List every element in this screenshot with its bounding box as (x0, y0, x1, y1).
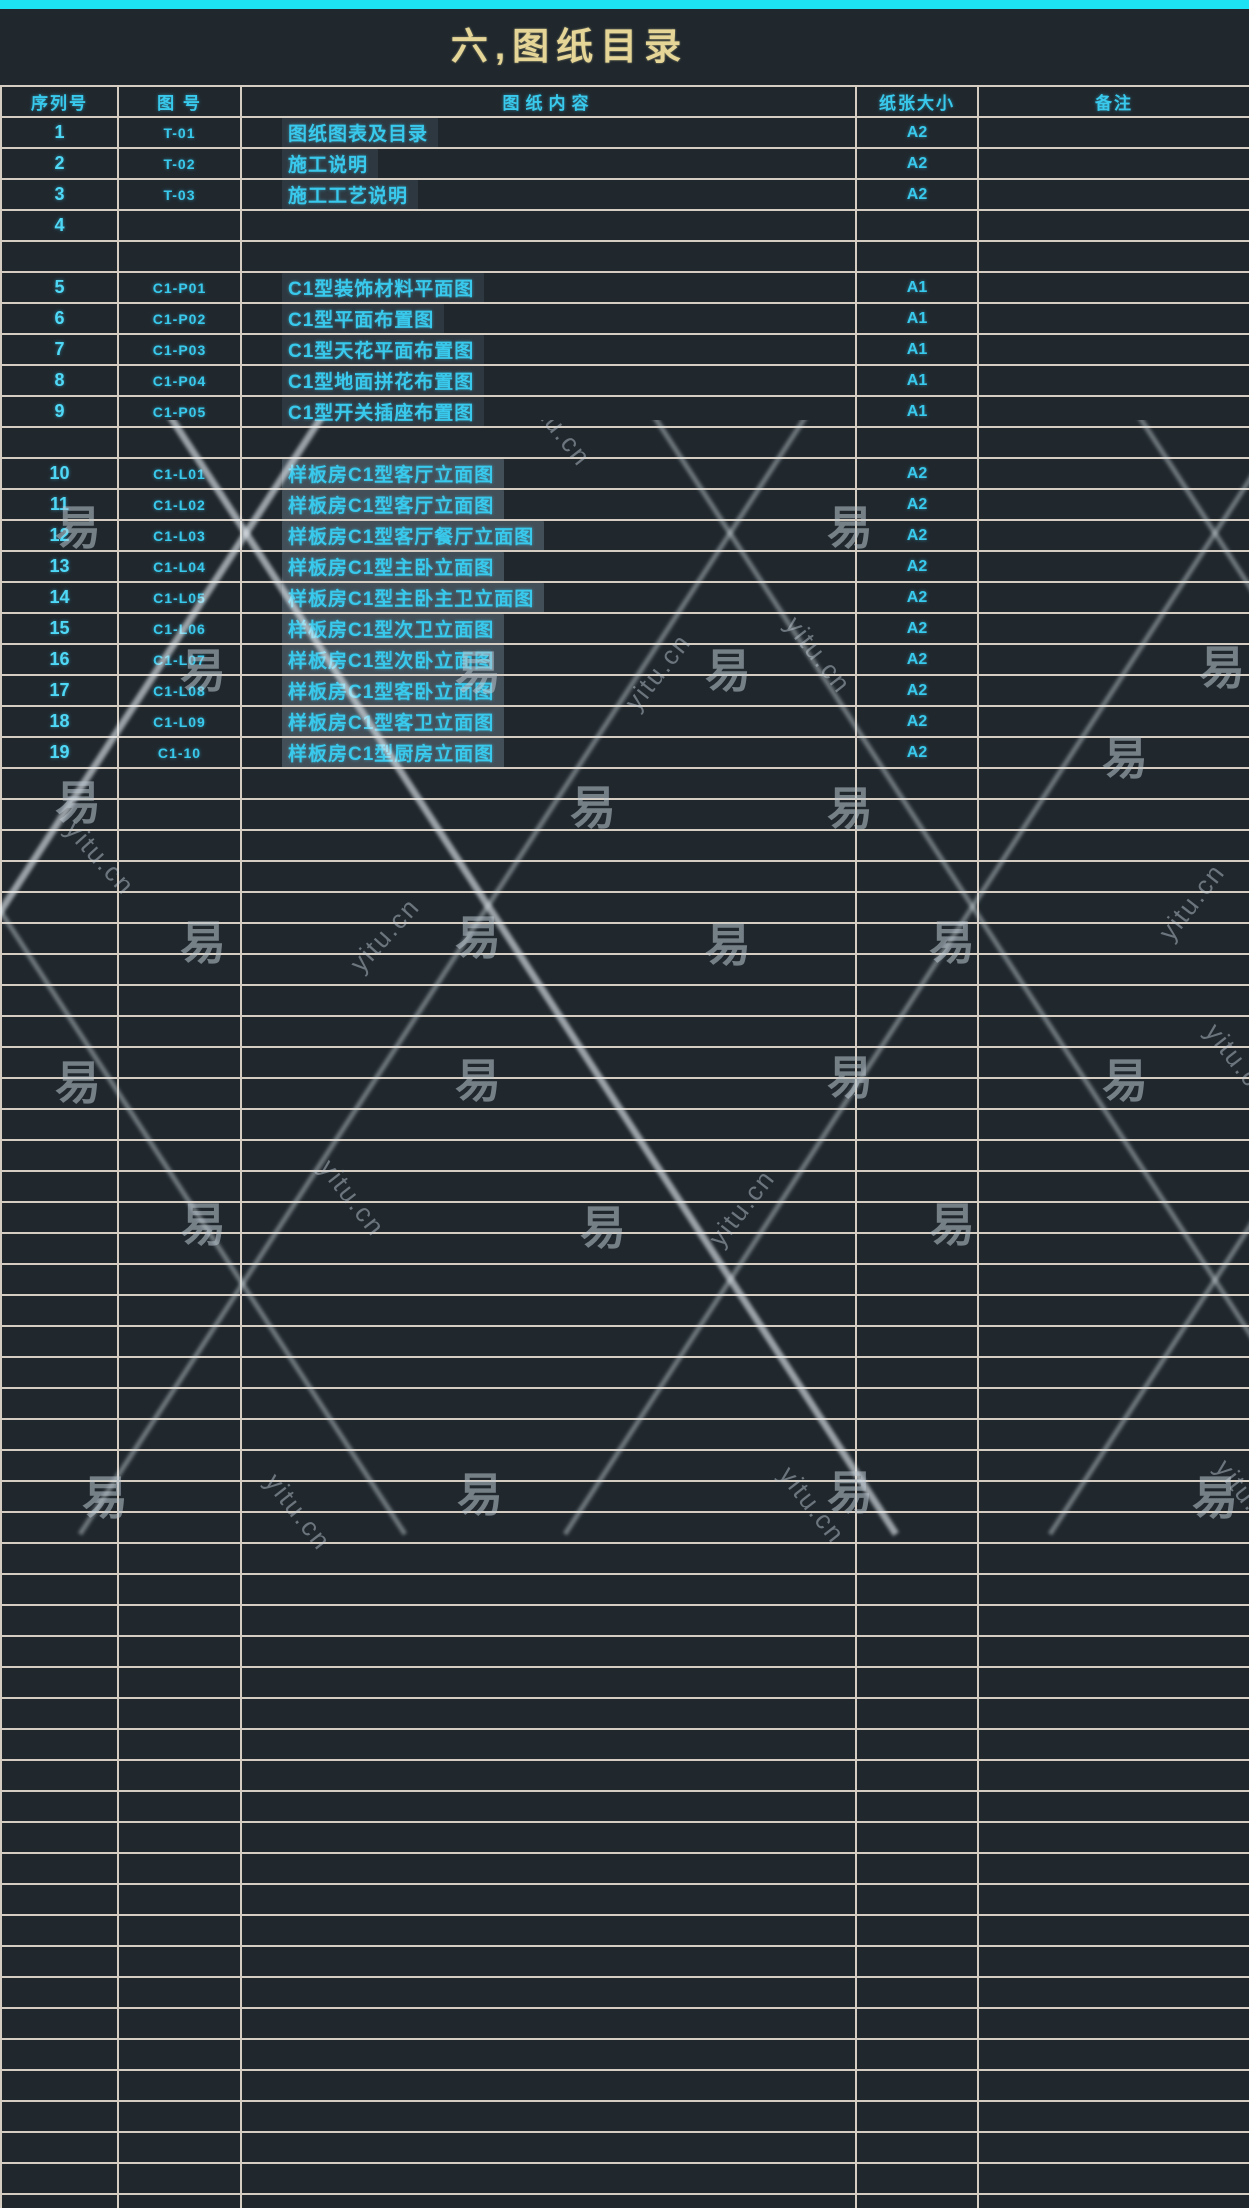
drawing-content-text: 样板房C1型主卧主卫立面图 (282, 583, 544, 612)
table-row: 14C1-L05样板房C1型主卧主卫立面图A2 (2, 583, 1249, 614)
table-row-empty (2, 1823, 1249, 1854)
table-row-empty (2, 2071, 1249, 2102)
table-row-empty (2, 893, 1249, 924)
drawing-content-text: 样板房C1型客卧立面图 (282, 676, 504, 705)
drawing-content-text: C1型地面拼花布置图 (282, 366, 484, 395)
drawing-content-text: 样板房C1型客卫立面图 (282, 707, 504, 736)
header-paper-size: 纸张大小 (857, 87, 979, 116)
page-title: 六,图纸目录 (0, 16, 1194, 70)
header-drawing-no: 图 号 (119, 87, 242, 116)
table-row-empty (2, 1079, 1249, 1110)
table-row: 9C1-P05C1型开关插座布置图A1 (2, 397, 1249, 428)
drawing-content-text: 样板房C1型客厅餐厅立面图 (282, 521, 544, 550)
table-row-empty (2, 924, 1249, 955)
table-row: 12C1-L03样板房C1型客厅餐厅立面图A2 (2, 521, 1249, 552)
table-row-empty (2, 1172, 1249, 1203)
drawing-content-text: C1型天花平面布置图 (282, 335, 484, 364)
table-row-empty (2, 1203, 1249, 1234)
drawing-content-text: 图纸图表及目录 (282, 118, 438, 147)
table-row-empty (2, 2102, 1249, 2133)
table-row: 10C1-L01样板房C1型客厅立面图A2 (2, 459, 1249, 490)
table-row-empty (2, 955, 1249, 986)
table-row-empty (2, 1513, 1249, 1544)
table-row: 4 (2, 211, 1249, 242)
table-row: 18C1-L09样板房C1型客卫立面图A2 (2, 707, 1249, 738)
table-body: 1T-01图纸图表及目录A22T-02施工说明A23T-03施工工艺说明A245… (2, 118, 1249, 2208)
table-row: 5C1-P01C1型装饰材料平面图A1 (2, 273, 1249, 304)
header-content: 图纸内容 (242, 87, 857, 116)
table-row-empty (2, 1048, 1249, 1079)
table-row: 6C1-P02C1型平面布置图A1 (2, 304, 1249, 335)
table-row-empty (2, 1978, 1249, 2009)
header-remarks: 备注 (979, 87, 1249, 116)
table-row-empty (2, 1358, 1249, 1389)
table-row-empty (2, 1265, 1249, 1296)
table-row-empty (2, 1761, 1249, 1792)
table-row-empty (2, 986, 1249, 1017)
table-row-empty (2, 800, 1249, 831)
table-row-empty (2, 1451, 1249, 1482)
table-row-empty (2, 1916, 1249, 1947)
table-row-empty (2, 1730, 1249, 1761)
drawing-content-text: 样板房C1型主卧立面图 (282, 552, 504, 581)
top-cyan-bar (0, 0, 1249, 9)
table-row-empty (2, 1420, 1249, 1451)
table-row: 19C1-10样板房C1型厨房立面图A2 (2, 738, 1249, 769)
table-row-empty (2, 1947, 1249, 1978)
table-row-empty (2, 1327, 1249, 1358)
drawing-content-text: C1型平面布置图 (282, 304, 444, 333)
table-row-empty (2, 1017, 1249, 1048)
table-row: 16C1-L07样板房C1型次卧立面图A2 (2, 645, 1249, 676)
drawing-index-table: 序列号 图 号 图纸内容 纸张大小 备注 1T-01图纸图表及目录A22T-02… (0, 85, 1249, 2208)
table-row: 1T-01图纸图表及目录A2 (2, 118, 1249, 149)
table-header-row: 序列号 图 号 图纸内容 纸张大小 备注 (2, 87, 1249, 118)
table-row-empty (2, 769, 1249, 800)
table-row: 17C1-L08样板房C1型客卧立面图A2 (2, 676, 1249, 707)
drawing-content-text: C1型开关插座布置图 (282, 397, 484, 426)
table-row-empty (2, 1234, 1249, 1265)
table-row-empty (2, 1141, 1249, 1172)
table-row: 3T-03施工工艺说明A2 (2, 180, 1249, 211)
header-serial-no: 序列号 (2, 87, 119, 116)
drawing-content-text: C1型装饰材料平面图 (282, 273, 484, 302)
table-row-empty (2, 1482, 1249, 1513)
drawing-content-text: 施工说明 (282, 149, 378, 178)
drawing-content-text: 样板房C1型客厅立面图 (282, 490, 504, 519)
table-row-empty (2, 2040, 1249, 2071)
table-row: 11C1-L02样板房C1型客厅立面图A2 (2, 490, 1249, 521)
drawing-content-text: 样板房C1型客厅立面图 (282, 459, 504, 488)
drawing-content-text: 施工工艺说明 (282, 180, 418, 209)
table-row: 2T-02施工说明A2 (2, 149, 1249, 180)
table-row-empty (2, 1854, 1249, 1885)
table-row-empty (2, 2164, 1249, 2195)
table-row-empty (2, 2195, 1249, 2208)
table-row-empty (2, 1699, 1249, 1730)
table-row-empty (2, 1885, 1249, 1916)
drawing-content-text: 样板房C1型次卫立面图 (282, 614, 504, 643)
table-row-empty (2, 862, 1249, 893)
table-row-empty (2, 1575, 1249, 1606)
table-row-empty (2, 242, 1249, 273)
table-row-empty (2, 1389, 1249, 1420)
table-row-empty (2, 1668, 1249, 1699)
drawing-content-text: 样板房C1型次卧立面图 (282, 645, 504, 674)
table-row-empty (2, 1110, 1249, 1141)
table-row-empty (2, 2009, 1249, 2040)
table-row: 13C1-L04样板房C1型主卧立面图A2 (2, 552, 1249, 583)
table-row-empty (2, 1544, 1249, 1575)
table-row-empty (2, 428, 1249, 459)
table-row: 7C1-P03C1型天花平面布置图A1 (2, 335, 1249, 366)
table-row-empty (2, 1606, 1249, 1637)
cad-canvas: 六,图纸目录 序列号 图 号 图纸内容 纸张大小 备注 1T-01图纸图表及目录… (0, 0, 1249, 2208)
table-row-empty (2, 831, 1249, 862)
table-row: 8C1-P04C1型地面拼花布置图A1 (2, 366, 1249, 397)
table-row-empty (2, 1637, 1249, 1668)
table-row-empty (2, 2133, 1249, 2164)
table-row: 15C1-L06样板房C1型次卫立面图A2 (2, 614, 1249, 645)
table-row-empty (2, 1296, 1249, 1327)
table-row-empty (2, 1792, 1249, 1823)
drawing-content-text: 样板房C1型厨房立面图 (282, 738, 504, 767)
